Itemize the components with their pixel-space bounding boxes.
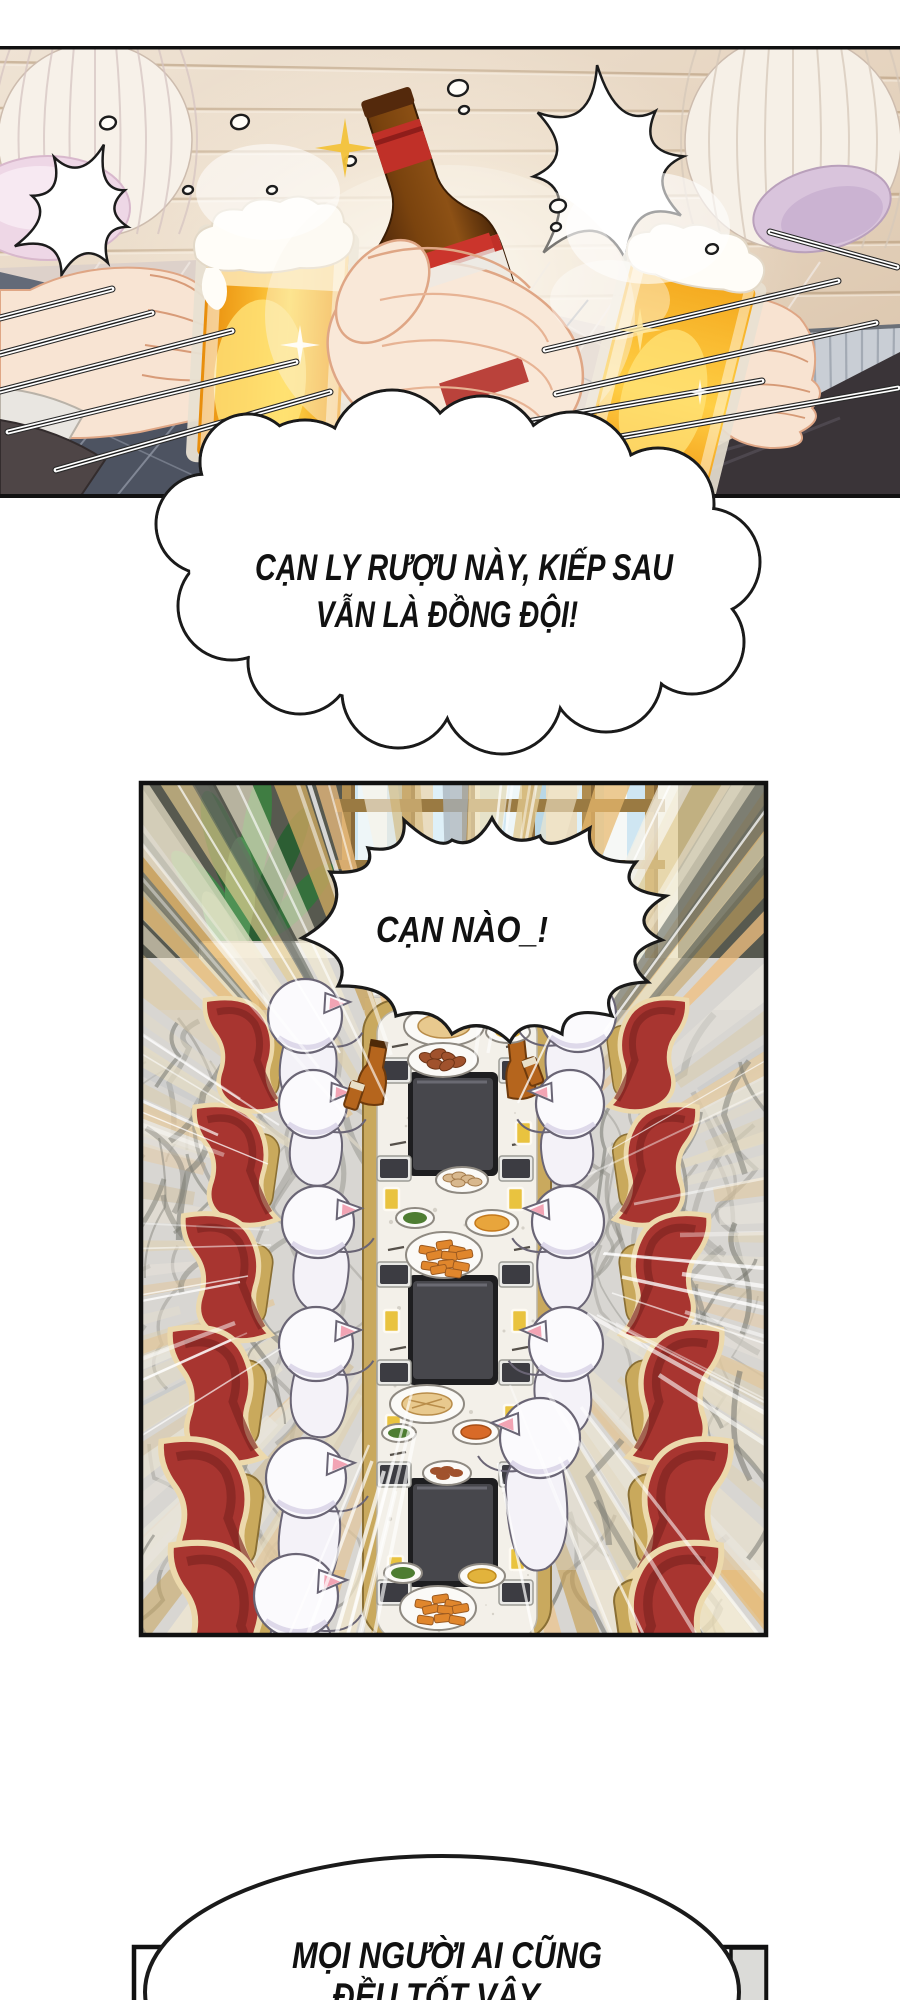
- svg-text:VẪN LÀ ĐỒNG ĐỘI!: VẪN LÀ ĐỒNG ĐỘI!: [316, 593, 578, 635]
- svg-text:ĐỀU TỐT VẬY: ĐỀU TỐT VẬY: [333, 1975, 543, 2000]
- svg-text:MỌI NGƯỜI AI CŨNG: MỌI NGƯỜI AI CŨNG: [292, 1934, 602, 1976]
- svg-text:CẠN NÀO_!: CẠN NÀO_!: [376, 909, 548, 950]
- svg-text:CẠN LY RƯỢU NÀY, KIẾP SAU: CẠN LY RƯỢU NÀY, KIẾP SAU: [255, 546, 674, 588]
